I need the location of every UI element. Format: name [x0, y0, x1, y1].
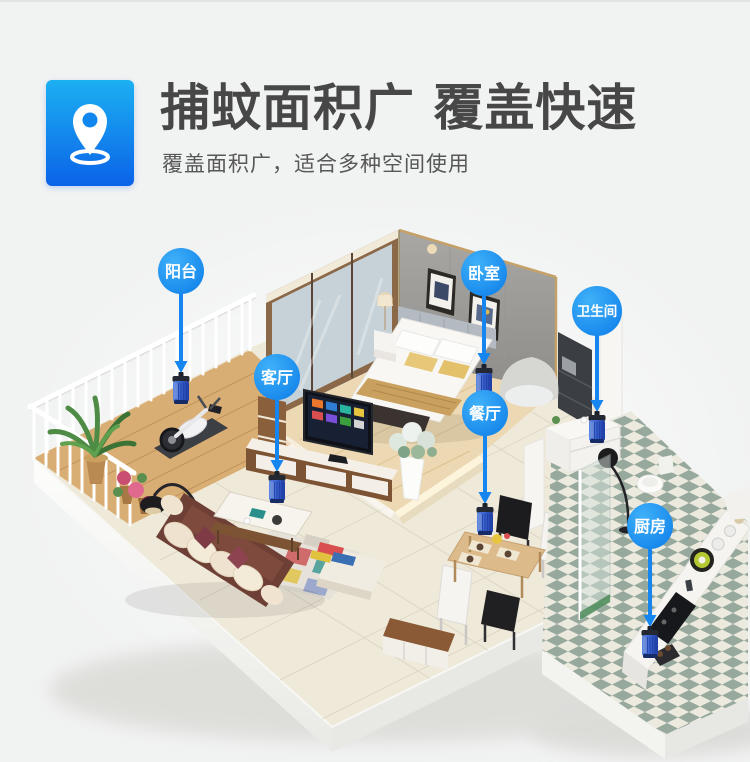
mosquito-trap-device-bathroom — [589, 411, 606, 443]
mosquito-trap-device-kitchen — [642, 626, 659, 658]
wall-sconce — [427, 244, 437, 254]
page-title: 捕蚊面积广 覆盖快速 — [160, 82, 637, 135]
location-pin-icon — [46, 80, 134, 186]
room-bubble-label: 餐厅 — [468, 404, 501, 423]
mosquito-trap-device-dining-room — [477, 503, 494, 535]
room-bubble-label: 卫生间 — [577, 303, 618, 320]
mosquito-trap-device-balcony — [173, 372, 190, 404]
promo-page: 捕蚊面积广 覆盖快速 覆盖面积广，适合多种空间使用 — [0, 0, 750, 762]
picture-frame — [426, 268, 456, 316]
header: 捕蚊面积广 覆盖快速 覆盖面积广，适合多种空间使用 — [46, 80, 637, 186]
room-bubble-label: 厨房 — [634, 517, 666, 536]
mosquito-trap-device-living-room — [269, 471, 286, 503]
glass-partition — [580, 455, 610, 620]
page-subtitle: 覆盖面积广，适合多种空间使用 — [162, 148, 637, 178]
room-bubble-label: 客厅 — [261, 368, 293, 387]
room-bubble-label: 卧室 — [468, 264, 500, 283]
header-titles: 捕蚊面积广 覆盖快速 覆盖面积广，适合多种空间使用 — [160, 80, 637, 178]
room-bubble-label: 阳台 — [165, 262, 197, 281]
